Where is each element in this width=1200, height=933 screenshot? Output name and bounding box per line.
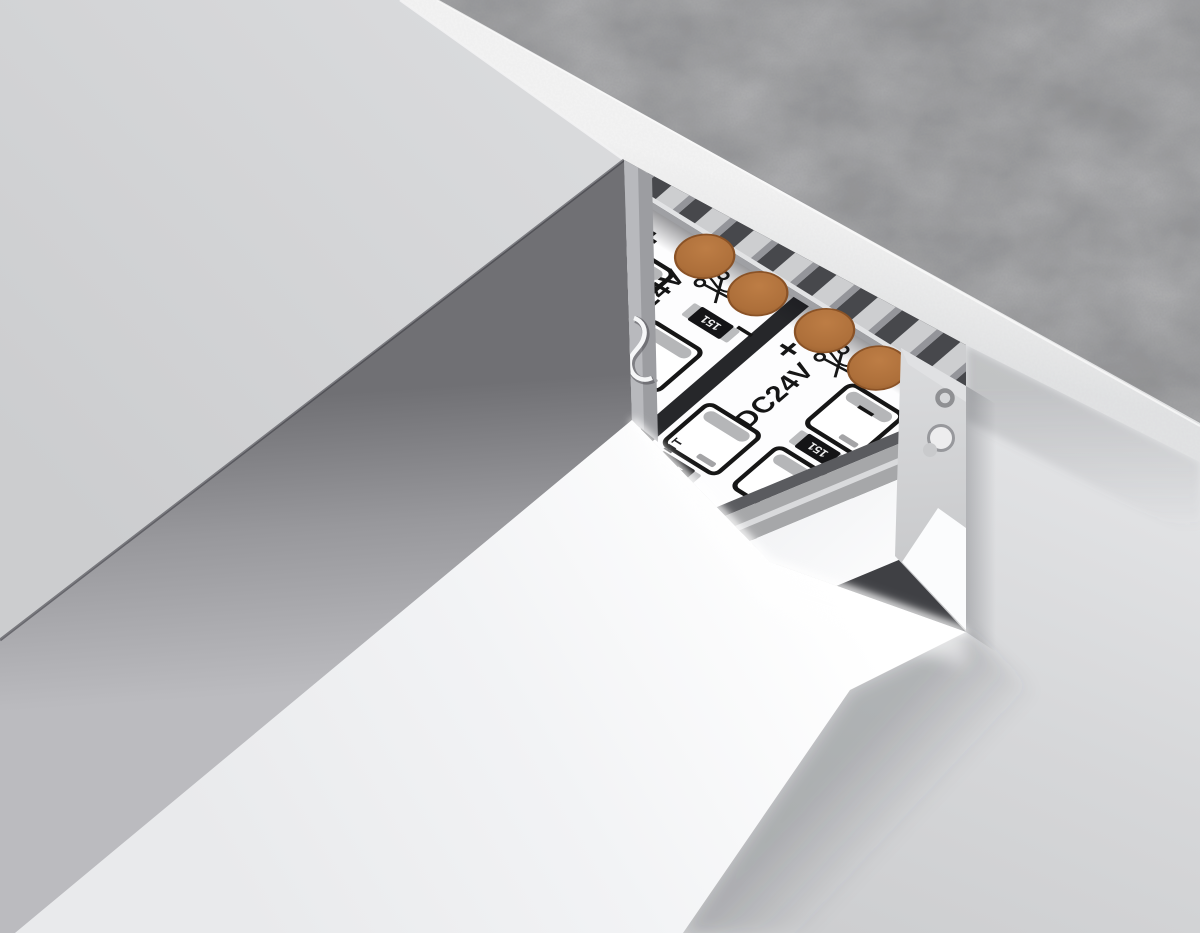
cut-shadow bbox=[966, 386, 996, 652]
led-profile-render-scene: 151 bbox=[0, 0, 1200, 933]
render-canvas: 151 bbox=[0, 0, 1200, 933]
